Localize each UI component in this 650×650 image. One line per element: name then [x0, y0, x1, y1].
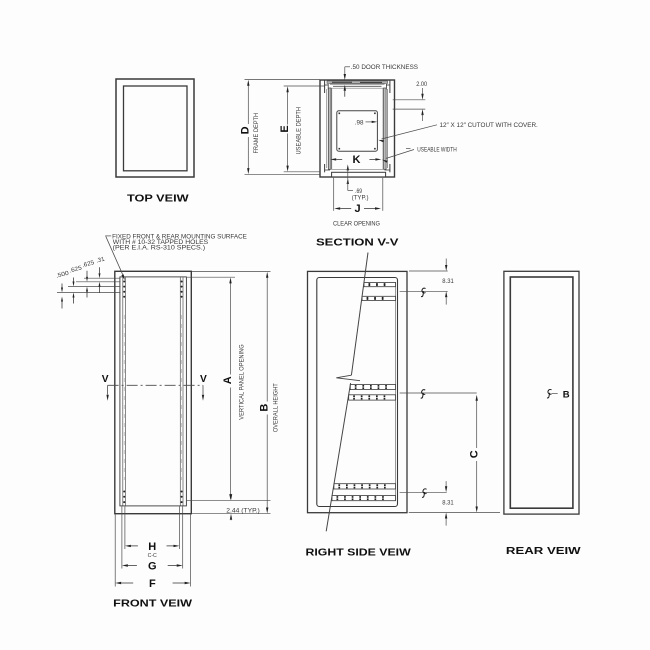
svg-text:(TYP.): (TYP.): [352, 195, 369, 202]
svg-text:C-C: C-C: [148, 553, 157, 559]
svg-text:FRAME DEPTH: FRAME DEPTH: [254, 113, 260, 154]
svg-text:TOP VEIW: TOP VEIW: [127, 194, 189, 205]
svg-text:(PER E.I.A. RS-310 SPECS.): (PER E.I.A. RS-310 SPECS.): [113, 245, 206, 252]
svg-text:FRONT VEIW: FRONT VEIW: [113, 599, 192, 610]
svg-text:VERTICAL PANEL OPENING: VERTICAL PANEL OPENING: [240, 344, 246, 420]
svg-text:.50 DOOR THICKNESS: .50 DOOR THICKNESS: [351, 64, 418, 71]
svg-text:G: G: [148, 560, 157, 572]
svg-text:C: C: [469, 450, 481, 458]
svg-text:USEABLE WIDTH: USEABLE WIDTH: [417, 146, 457, 153]
svg-text:8.31: 8.31: [442, 500, 454, 507]
svg-text:.98: .98: [355, 120, 364, 127]
svg-text:A: A: [222, 376, 234, 384]
svg-text:V: V: [200, 374, 207, 385]
svg-text:REAR VEIW: REAR VEIW: [506, 546, 581, 557]
svg-text:F: F: [149, 578, 156, 590]
svg-text:CLEAR OPENING: CLEAR OPENING: [333, 220, 380, 227]
svg-text:RIGHT SIDE VEIW: RIGHT SIDE VEIW: [306, 548, 411, 559]
svg-text:2.00: 2.00: [416, 81, 427, 88]
svg-text:B: B: [258, 404, 270, 412]
svg-text:E: E: [279, 125, 291, 132]
svg-text:V: V: [102, 374, 109, 385]
svg-text:8.31: 8.31: [442, 278, 454, 285]
svg-text:D: D: [240, 126, 252, 134]
svg-text:SECTION V-V: SECTION V-V: [316, 238, 398, 249]
svg-text:OVERALL HEIGHT: OVERALL HEIGHT: [274, 383, 280, 432]
svg-text:J: J: [355, 203, 361, 215]
svg-text:USEABLE DEPTH: USEABLE DEPTH: [296, 107, 302, 155]
svg-text:K: K: [353, 154, 361, 166]
svg-text:B: B: [563, 389, 570, 400]
svg-text:2.44 (TYP.): 2.44 (TYP.): [226, 508, 259, 515]
svg-text:12″ X 12″ CUTOUT WITH COVER.: 12″ X 12″ CUTOUT WITH COVER.: [440, 122, 539, 129]
svg-text:H: H: [148, 541, 156, 553]
